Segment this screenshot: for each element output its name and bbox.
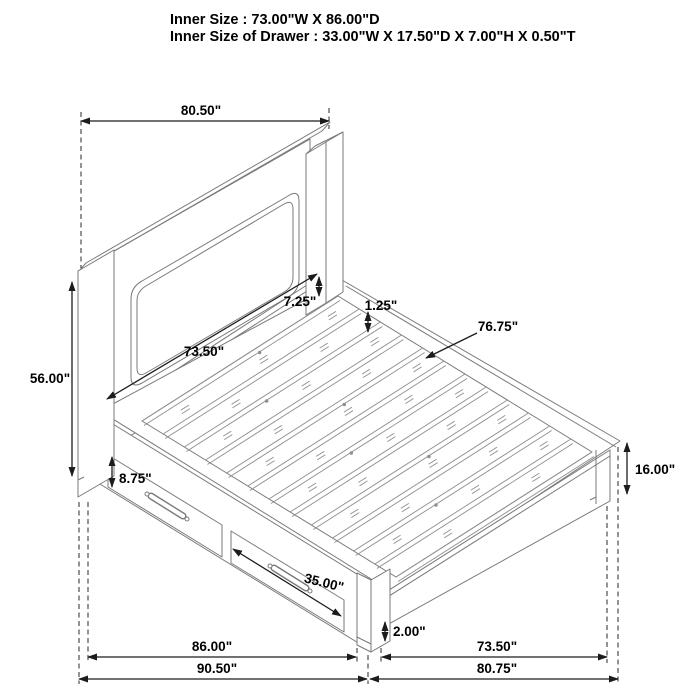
dim-foot-clearance-label: 2.00" [393,624,426,639]
headboard-left-post [78,250,114,497]
dim-headboard-height-label: 56.00" [30,371,70,386]
dim-foot-overall-width: 80.75" [370,661,618,679]
headboard-right-post [306,132,343,315]
bed-drawing [78,122,620,652]
dim-foot-inner-width-label: 73.50" [477,639,517,654]
dim-headboard-panel-width-label: 73.50" [184,344,224,359]
dim-side-inner-length: 86.00" [88,639,356,657]
dim-side-overall-length-label: 90.50" [197,661,237,676]
dim-drawer-face-height-label: 8.75" [119,471,152,486]
dim-footboard-height: 16.00" [627,443,675,494]
drawer-size-text: Inner Size of Drawer : 33.00"W X 17.50"D… [170,29,576,45]
dim-foot-clearance: 2.00" [385,622,426,641]
dim-headboard-width-label: 80.50" [181,103,221,118]
dim-headboard-height: 56.00" [30,282,72,476]
dim-side-overall-length: 90.50" [79,661,367,679]
dim-footboard-height-label: 16.00" [635,462,675,477]
dim-side-inner-length-label: 86.00" [192,639,232,654]
dim-panel-to-rail-gap-label: 7.25" [284,294,317,309]
inner-size-text: Inner Size : 73.00"W X 86.00"D [170,12,380,28]
dim-foot-inner-width: 73.50" [382,639,607,657]
bed-dimension-diagram: Inner Size : 73.00"W X 86.00"D Inner Siz… [0,0,700,700]
dim-slat-length-label: 76.75" [478,319,518,334]
dim-foot-overall-width-label: 80.75" [477,661,517,676]
dim-slat-thickness-label: 1.25" [365,298,398,313]
diagram-canvas: Inner Size : 73.00"W X 86.00"D Inner Siz… [0,0,700,700]
header: Inner Size : 73.00"W X 86.00"D Inner Siz… [170,12,576,45]
dim-headboard-width: 80.50" [81,103,329,121]
